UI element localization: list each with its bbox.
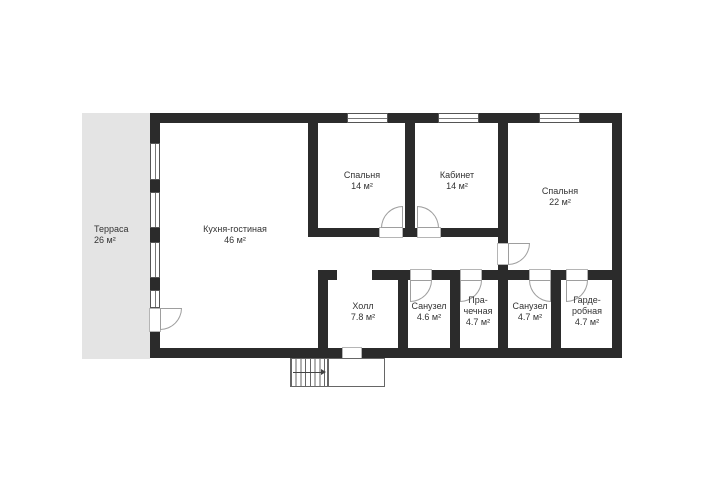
- door-arc-bathroom2: [529, 280, 551, 302]
- room-label-terrace: Терраса 26 м²: [94, 224, 129, 246]
- room-area: 4.7 м²: [464, 317, 493, 328]
- wall-corridor-bottom: [432, 270, 460, 280]
- room-name: Холл: [351, 301, 375, 312]
- room-name: Терраса: [94, 224, 129, 235]
- stairs-direction-arrow: [293, 372, 322, 373]
- room-name: робная: [572, 306, 602, 317]
- room-area: 4.7 м²: [572, 317, 602, 328]
- wall-corridor-top: [308, 228, 379, 237]
- wall-right: [612, 113, 622, 358]
- window: [438, 113, 479, 123]
- wall-kitchen-bedroom1: [308, 123, 318, 237]
- wall-corridor-top: [403, 228, 417, 237]
- room-area: 4.7 м²: [512, 312, 547, 323]
- room-name: Кухня-гостиная: [203, 224, 267, 235]
- wall-left-pier: [150, 180, 160, 192]
- room-name: Пра-: [464, 295, 493, 306]
- room-area: 14 м²: [344, 181, 380, 192]
- room-label-bedroom2: Спальня 22 м²: [542, 186, 578, 208]
- wall-corridor-top: [441, 228, 498, 237]
- room-name: чечная: [464, 306, 493, 317]
- stairs-direction-arrow-head: [321, 369, 326, 375]
- room-area: 4.6 м²: [411, 312, 446, 323]
- door-arc-bedroom2: [508, 243, 530, 265]
- wall-left-pier: [150, 228, 160, 242]
- wall-bottom: [150, 348, 342, 358]
- window: [150, 242, 160, 278]
- room-name: Кабинет: [440, 170, 474, 181]
- room-label-kitchen-living: Кухня-гостиная 46 м²: [203, 224, 267, 246]
- door-office: [417, 227, 441, 238]
- wall-left: [150, 332, 160, 358]
- window: [150, 143, 160, 180]
- room-label-bathroom1: Санузел 4.6 м²: [411, 301, 446, 323]
- room-label-laundry: Пра- чечная 4.7 м²: [464, 295, 493, 328]
- room-name: Спальня: [344, 170, 380, 181]
- room-area: 14 м²: [440, 181, 474, 192]
- room-name: Спальня: [542, 186, 578, 197]
- room-name: Санузел: [411, 301, 446, 312]
- window: [150, 192, 160, 228]
- wall-corridor-bottom: [482, 270, 529, 280]
- door-arc-bedroom1: [381, 206, 403, 228]
- wall-kitchen-hall: [318, 270, 328, 348]
- room-area: 46 м²: [203, 235, 267, 246]
- wall-corridor-bottom: [372, 270, 410, 280]
- wall-bathroom2-wardrobe: [551, 280, 561, 348]
- room-area: 22 м²: [542, 197, 578, 208]
- window: [539, 113, 580, 123]
- wall-left-pier: [150, 278, 160, 290]
- room-name: Гарде-: [572, 295, 602, 306]
- room-label-bathroom2: Санузел 4.7 м²: [512, 301, 547, 323]
- wall-left: [150, 113, 160, 143]
- wall-hall-bathroom1: [398, 280, 408, 348]
- room-area: 7.8 м²: [351, 312, 375, 323]
- entrance-porch: [328, 358, 385, 387]
- window: [150, 290, 160, 308]
- window: [347, 113, 388, 123]
- wall-corridor-bottom: [551, 270, 566, 280]
- wall-bedroom1-office: [405, 123, 415, 237]
- room-label-wardrobe: Гарде- робная 4.7 м²: [572, 295, 602, 328]
- room-label-hall: Холл 7.8 м²: [351, 301, 375, 323]
- wall-bathroom1-laundry: [450, 280, 460, 348]
- door-arc-terrace: [160, 308, 182, 330]
- wall-laundry-bathroom2: [498, 280, 508, 348]
- door-arc-office: [417, 206, 439, 228]
- wall-corridor-bottom: [588, 270, 612, 280]
- door-arc-bathroom1: [410, 280, 432, 302]
- door-bedroom1: [379, 227, 403, 238]
- floor-plan: Терраса 26 м² Кухня-гостиная 46 м² Спаль…: [0, 0, 702, 502]
- room-area: 26 м²: [94, 235, 129, 246]
- room-label-office: Кабинет 14 м²: [440, 170, 474, 192]
- room-name: Санузел: [512, 301, 547, 312]
- wall-bottom: [362, 348, 622, 358]
- wall-office-bedroom2: [498, 123, 508, 243]
- room-label-bedroom1: Спальня 14 м²: [344, 170, 380, 192]
